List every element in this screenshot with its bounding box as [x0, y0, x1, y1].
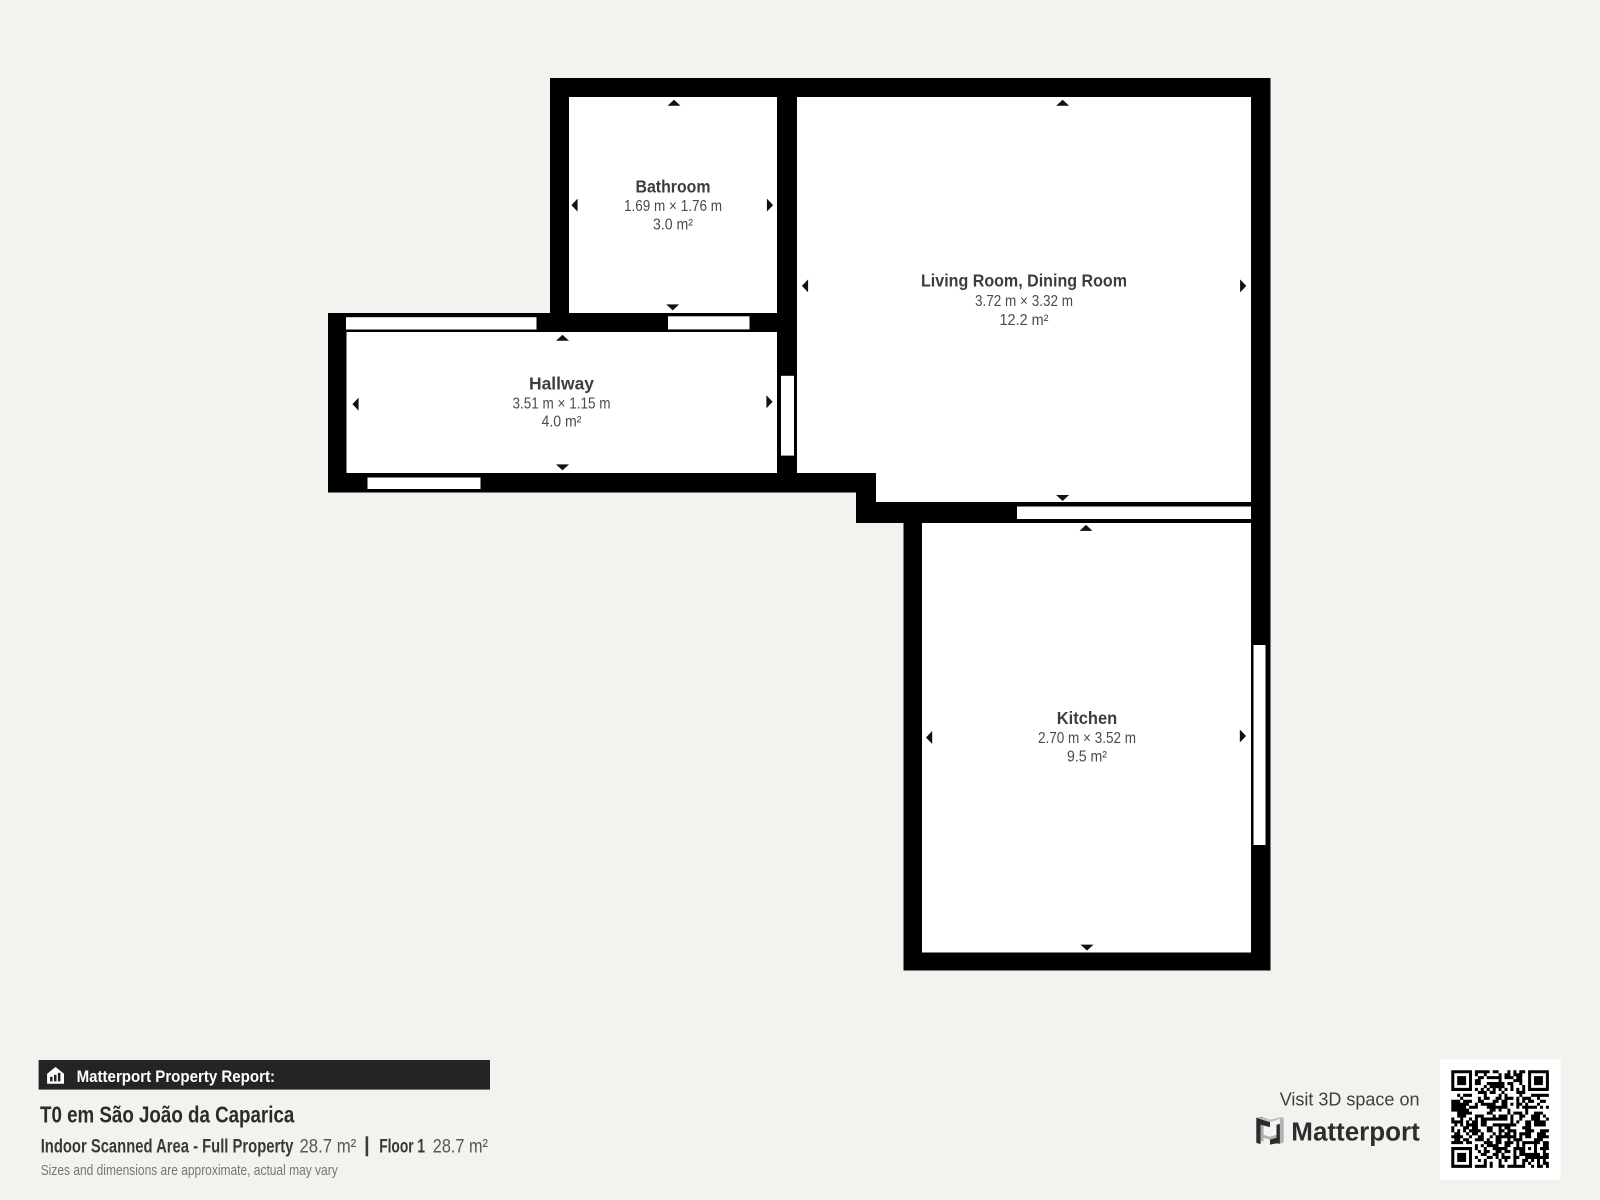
svg-text:Hallway: Hallway [529, 374, 594, 394]
svg-text:Bathroom: Bathroom [636, 177, 711, 197]
svg-text:28.7 m²: 28.7 m² [433, 1137, 488, 1158]
svg-text:4.0 m²: 4.0 m² [542, 414, 582, 431]
svg-text:9.5 m²: 9.5 m² [1067, 748, 1107, 765]
svg-text:Matterport: Matterport [1291, 1118, 1420, 1146]
svg-text:3.72 m × 3.32 m: 3.72 m × 3.32 m [975, 293, 1073, 310]
svg-text:2.70 m × 3.52 m: 2.70 m × 3.52 m [1038, 730, 1136, 747]
svg-text:Visit 3D space on: Visit 3D space on [1280, 1090, 1420, 1110]
svg-text:28.7 m²: 28.7 m² [300, 1137, 357, 1158]
svg-text:Floor 1: Floor 1 [379, 1137, 425, 1158]
svg-text:Sizes and dimensions are appro: Sizes and dimensions are approximate, ac… [41, 1163, 339, 1179]
svg-text:3.51 m × 1.15 m: 3.51 m × 1.15 m [513, 396, 611, 413]
svg-text:Living Room, Dining Room: Living Room, Dining Room [921, 271, 1127, 291]
svg-text:T0 em São João da Caparica: T0 em São João da Caparica [40, 1102, 294, 1128]
svg-text:Indoor Scanned Area - Full Pro: Indoor Scanned Area - Full Property [41, 1137, 294, 1158]
svg-text:Kitchen: Kitchen [1057, 708, 1118, 728]
svg-text:1.69 m × 1.76 m: 1.69 m × 1.76 m [624, 198, 722, 215]
svg-text:Matterport Property Report:: Matterport Property Report: [77, 1067, 275, 1086]
svg-text:3.0 m²: 3.0 m² [653, 217, 693, 234]
svg-text:12.2 m²: 12.2 m² [1000, 312, 1049, 329]
